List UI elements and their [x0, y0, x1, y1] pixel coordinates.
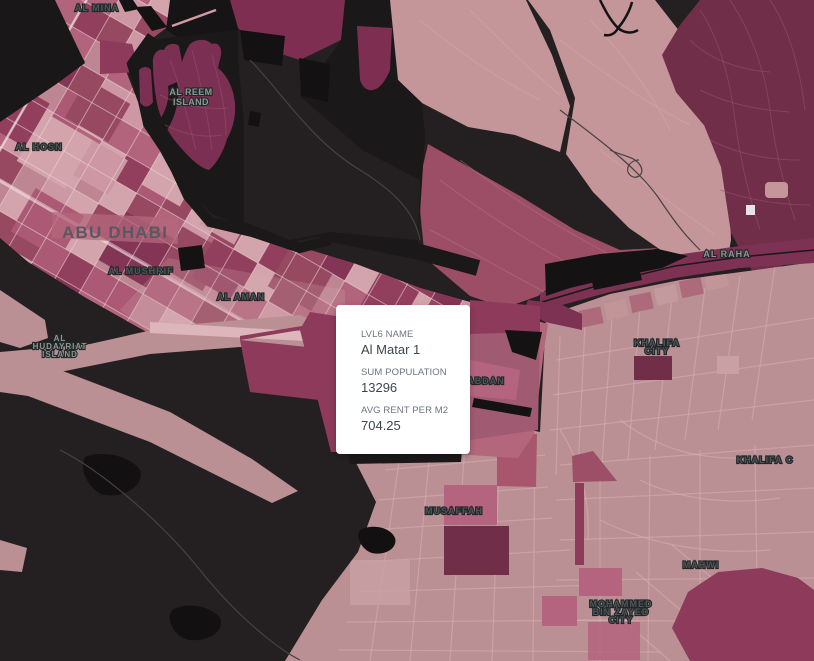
- svg-text:AL HOSN: AL HOSN: [15, 142, 62, 152]
- svg-text:CITY: CITY: [609, 615, 634, 625]
- svg-text:AL MUSHRIF: AL MUSHRIF: [108, 266, 173, 276]
- svg-text:ISLAND: ISLAND: [42, 350, 78, 359]
- svg-text:CITY: CITY: [645, 346, 670, 356]
- svg-text:ABU DHABI: ABU DHABI: [62, 223, 168, 242]
- svg-text:MUSAFFAH: MUSAFFAH: [425, 506, 483, 516]
- svg-text:ISLAND: ISLAND: [173, 97, 209, 107]
- svg-text:AL REEM: AL REEM: [169, 87, 212, 97]
- svg-text:AL MINA: AL MINA: [75, 3, 119, 13]
- svg-text:KHALIFA C: KHALIFA C: [737, 455, 794, 465]
- svg-text:AL AMAN: AL AMAN: [217, 292, 265, 302]
- svg-text:AL RAHA: AL RAHA: [703, 249, 750, 259]
- svg-text:ABDAN: ABDAN: [467, 376, 505, 386]
- svg-text:MAHWI: MAHWI: [683, 560, 720, 570]
